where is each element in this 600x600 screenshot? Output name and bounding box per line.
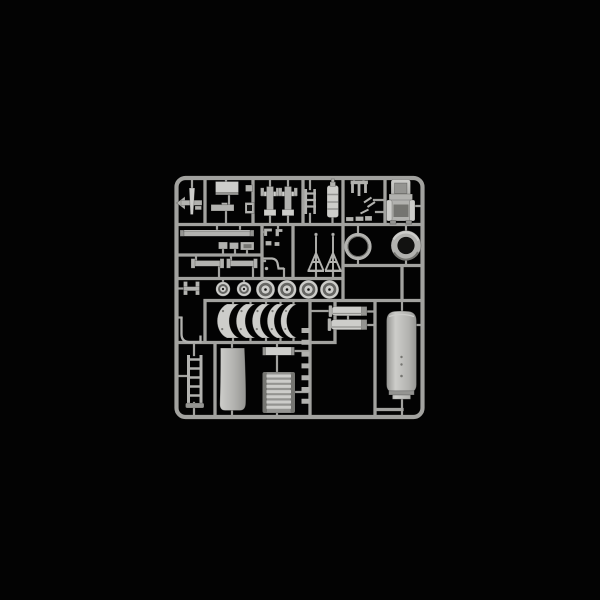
part-bottle — [327, 179, 339, 218]
runner-lattice — [177, 179, 423, 415]
part-clip-tabs — [302, 331, 310, 402]
part-louvre-cylinder — [263, 372, 296, 413]
fender-section — [281, 304, 297, 338]
part-ladder-small — [305, 189, 317, 214]
part-arrow — [177, 188, 203, 215]
part-small-boxes — [219, 242, 255, 250]
part-wheels — [216, 280, 339, 299]
idler-wheel — [237, 282, 251, 296]
product-photo: Light grey plastic model kit sprue on a … — [0, 0, 600, 600]
part-thin-bars — [191, 259, 258, 269]
arrow-bit — [195, 206, 202, 210]
sprue-photo — [0, 0, 600, 600]
part-ladder — [186, 355, 205, 408]
part-fork-rake — [346, 181, 375, 222]
panel-face — [220, 348, 246, 411]
part-wire-hook — [182, 317, 201, 342]
road-wheel — [256, 280, 275, 299]
part-ring-thin — [346, 235, 370, 259]
part-seat — [387, 180, 416, 225]
fender-section — [217, 304, 239, 338]
part-tray — [211, 203, 234, 211]
arrow-fin — [189, 188, 195, 215]
part-panel — [220, 348, 246, 411]
idler-wheel — [216, 282, 230, 296]
sprue-runners — [177, 179, 423, 415]
part-fenders — [217, 304, 296, 338]
part-ring-thick — [391, 231, 421, 261]
road-wheel — [299, 280, 318, 299]
part-tripods — [308, 233, 342, 271]
tank-body — [387, 311, 417, 399]
part-grille-comb — [263, 347, 295, 355]
part-hooks-small — [264, 229, 285, 271]
part-trunnion-mounts — [261, 187, 298, 216]
road-wheel — [320, 280, 339, 299]
part-h-bracket — [184, 282, 200, 296]
part-rect-panel-small — [216, 182, 239, 196]
road-wheel — [278, 280, 297, 299]
part-fuel-tank — [387, 311, 417, 399]
part-long-bar — [180, 230, 254, 236]
